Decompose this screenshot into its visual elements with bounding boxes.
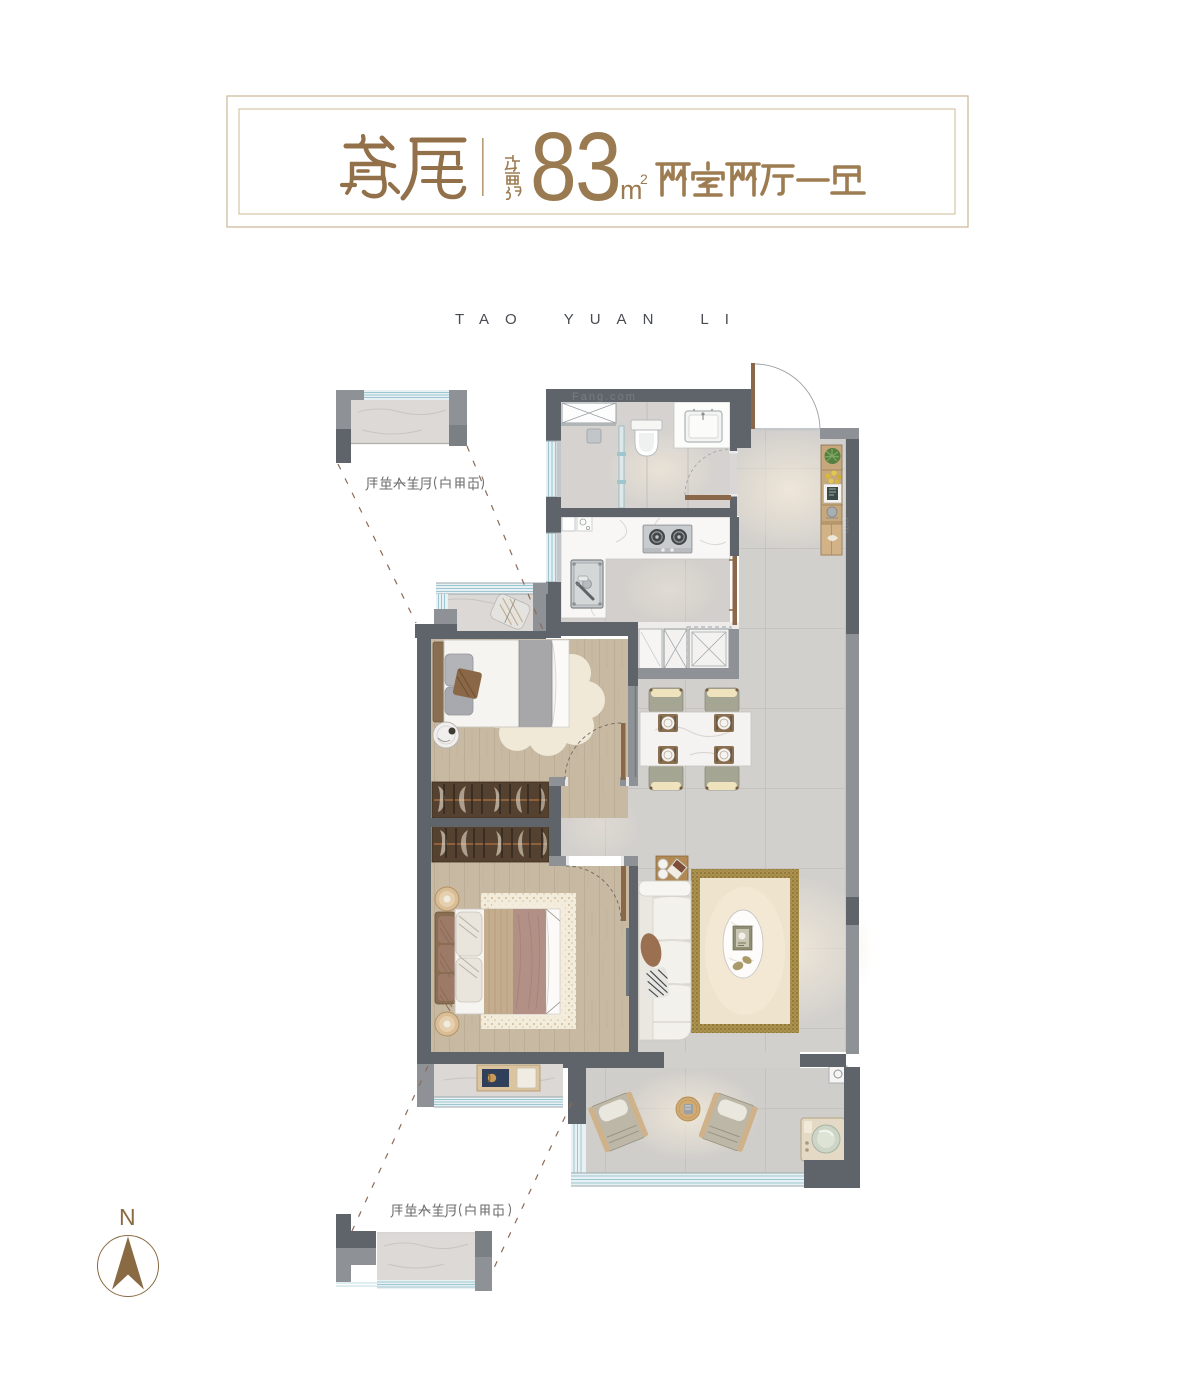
svg-text:Fang.com: Fang.com — [572, 391, 637, 403]
svg-text:N: N — [119, 1204, 136, 1230]
svg-text:TAO YUAN LI: TAO YUAN LI — [455, 311, 745, 328]
svg-text:83: 83 — [530, 112, 620, 221]
svg-text:2: 2 — [640, 171, 648, 187]
svg-text:om: om — [839, 517, 853, 534]
